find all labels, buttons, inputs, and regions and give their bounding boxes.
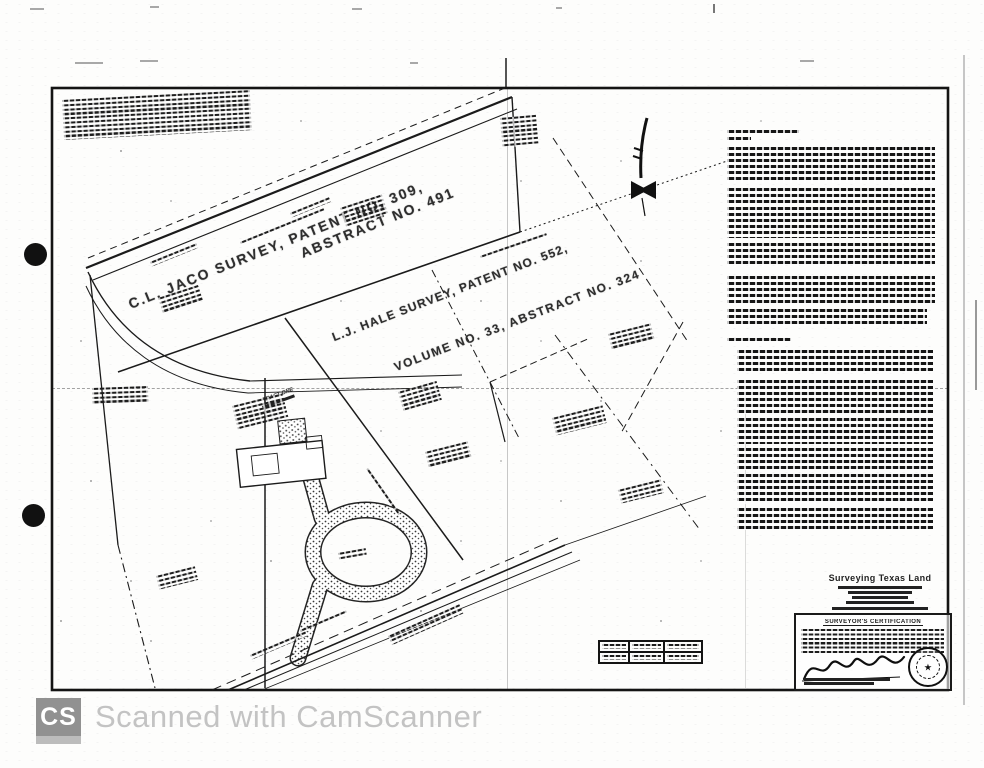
- surveyor-seal: ★: [908, 647, 948, 687]
- surveyor-name-line: [804, 678, 890, 681]
- title-block-cell: [629, 641, 664, 652]
- firm-address-line: [848, 591, 912, 594]
- camscanner-badge: CS: [36, 698, 81, 736]
- firm-address-line: [846, 601, 914, 604]
- map-annotation: [500, 115, 538, 148]
- map-annotation: [92, 386, 149, 404]
- camscanner-caption: Scanned with CamScanner: [95, 699, 482, 735]
- scanned-survey-plat-page: C.L. JACO SURVEY, PATENT NO. 309, ABSTRA…: [0, 0, 984, 768]
- title-block-cell: [599, 641, 629, 652]
- title-block-cell: [629, 652, 664, 663]
- building-footprint: [234, 417, 326, 488]
- certification-title: SURVEYOR'S CERTIFICATION: [796, 619, 950, 625]
- title-block-cell: [599, 652, 629, 663]
- north-arrow-icon: [631, 118, 656, 216]
- title-block-cell: [664, 641, 702, 652]
- camscanner-badge-fold: [36, 736, 81, 744]
- title-block-cell: [664, 652, 702, 663]
- firm-address-line: [838, 586, 922, 589]
- camscanner-badge-text: CS: [40, 703, 77, 732]
- firm-address-line: [832, 607, 928, 610]
- surveyor-license-line: [804, 682, 874, 685]
- firm-name: Surveying Texas Land: [815, 573, 945, 583]
- title-block-table: [598, 640, 703, 664]
- surveyor-certification-box: SURVEYOR'S CERTIFICATION ★: [794, 613, 952, 691]
- surveyor-signature: [800, 647, 912, 687]
- firm-address-line: [852, 596, 908, 599]
